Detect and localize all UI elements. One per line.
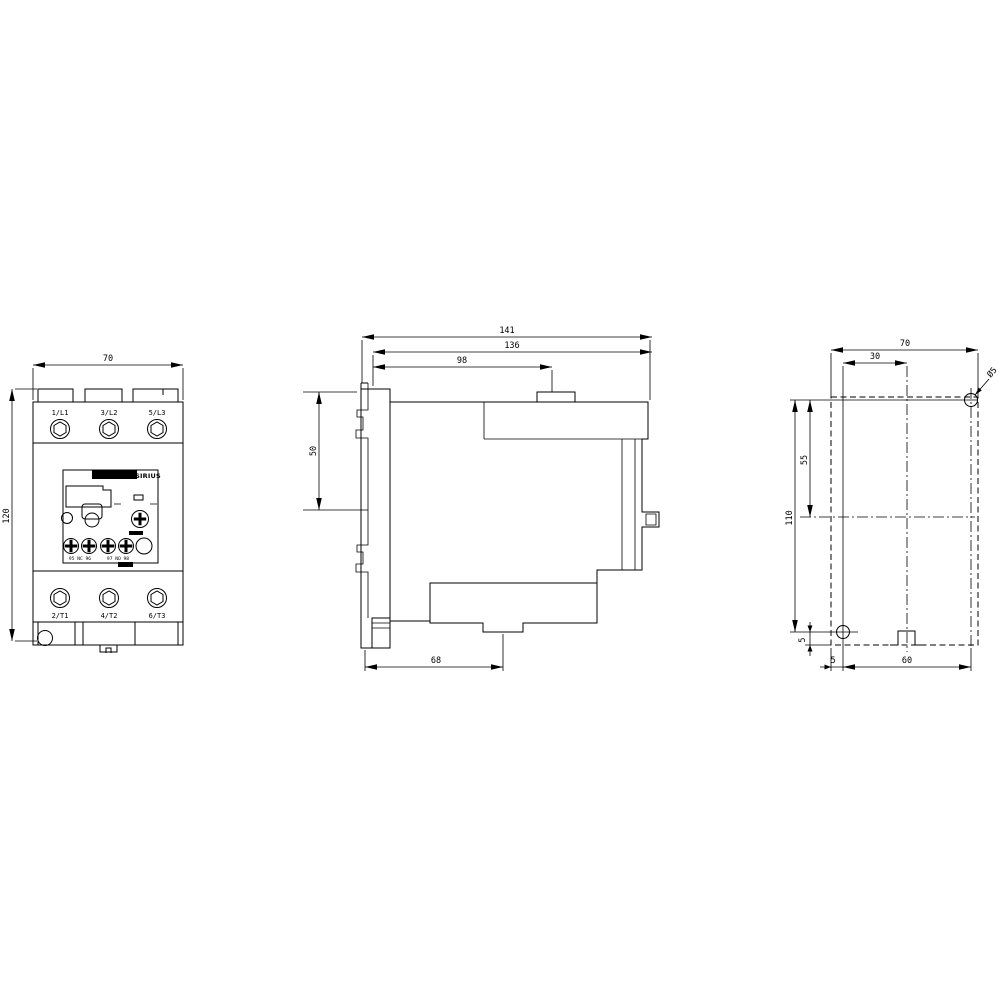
- terminal-label-1L1: 1/L1: [52, 409, 69, 417]
- terminal-label-2T1: 2/T1: [52, 612, 69, 620]
- terminal-screw: [100, 589, 119, 608]
- terminal-label-4T2: 4/T2: [101, 612, 118, 620]
- reset-badge: [118, 562, 133, 567]
- terminal-label-6T3: 6/T3: [149, 612, 166, 620]
- front-top-terminals: 1/L1 3/L2 5/L3: [51, 409, 167, 439]
- rear-width-dimension: 70: [831, 339, 978, 397]
- side-dim-98-label: 98: [457, 356, 467, 366]
- terminal-label-3L2: 3/L2: [101, 409, 118, 417]
- aux-terminal-screws: [64, 538, 153, 554]
- front-width-dim-label: 70: [103, 354, 113, 364]
- hole-diameter-callout: Ø5: [975, 365, 1000, 395]
- technical-drawing-canvas: 70 120 1/L1 3/L2 5/L3: [0, 0, 1000, 1000]
- side-view: 141 136 98 50 68: [303, 326, 659, 671]
- side-dim-50-label: 50: [309, 446, 319, 456]
- rear-dim-55-label: 55: [800, 455, 810, 465]
- aux-label-no: 97 NO 98: [107, 556, 129, 562]
- hole-diameter-label: Ø5: [985, 365, 1000, 380]
- rear-dim-30-label: 30: [870, 352, 880, 362]
- aux-label-nc: 95 NC 96: [69, 556, 91, 562]
- rear-dim-60-label: 60: [902, 656, 912, 666]
- terminal-screw: [100, 420, 119, 439]
- brand-label: SIRIUS: [135, 472, 161, 480]
- terminal-screw: [148, 589, 167, 608]
- terminal-clamp-detail: [646, 514, 656, 525]
- mounting-notch: [890, 631, 923, 645]
- side-dim-141-label: 141: [499, 326, 514, 336]
- dimensional-drawing: 70 120 1/L1 3/L2 5/L3: [0, 0, 1000, 1000]
- din-rail-clip: [356, 383, 390, 648]
- front-control-panel: SIRIUS 95 NC 96 97 NO 98: [62, 470, 161, 567]
- front-height-dim-label: 120: [2, 508, 12, 523]
- rear-dim-70-label: 70: [900, 339, 910, 349]
- front-bottom-terminals: 2/T1 4/T2 6/T3: [51, 589, 167, 621]
- front-view: 70 120 1/L1 3/L2 5/L3: [2, 354, 183, 653]
- rear-vertical-dimensions: 110 55 5: [785, 400, 813, 656]
- terminal-screw: [51, 589, 70, 608]
- front-width-dimension: 70: [33, 354, 183, 400]
- terminal-screw: [51, 420, 70, 439]
- mounting-footprint: [831, 397, 978, 645]
- front-bottom-hole: [38, 631, 53, 646]
- rear-dim-110-label: 110: [785, 510, 795, 525]
- rear-dim-5v-label: 5: [798, 637, 808, 642]
- side-depth-dimensions: 141 136 98: [362, 326, 652, 400]
- adjustment-dial: [114, 495, 157, 528]
- rear-view: Ø5 70 30 110 55 5 5 60: [785, 339, 1000, 671]
- front-height-dimension: 120: [2, 389, 37, 641]
- terminal-label-5L3: 5/L3: [149, 409, 166, 417]
- terminal-screw: [148, 420, 167, 439]
- side-dim-136-label: 136: [504, 341, 519, 351]
- rear-hole-offset-dimension: 30: [843, 352, 907, 363]
- side-dim-68-label: 68: [431, 656, 441, 666]
- side-body-outline: [361, 389, 659, 632]
- test-button: [136, 538, 152, 554]
- type-label-badge: [92, 470, 137, 479]
- class-badge: [129, 531, 143, 535]
- side-base-dimension: 68: [365, 634, 503, 671]
